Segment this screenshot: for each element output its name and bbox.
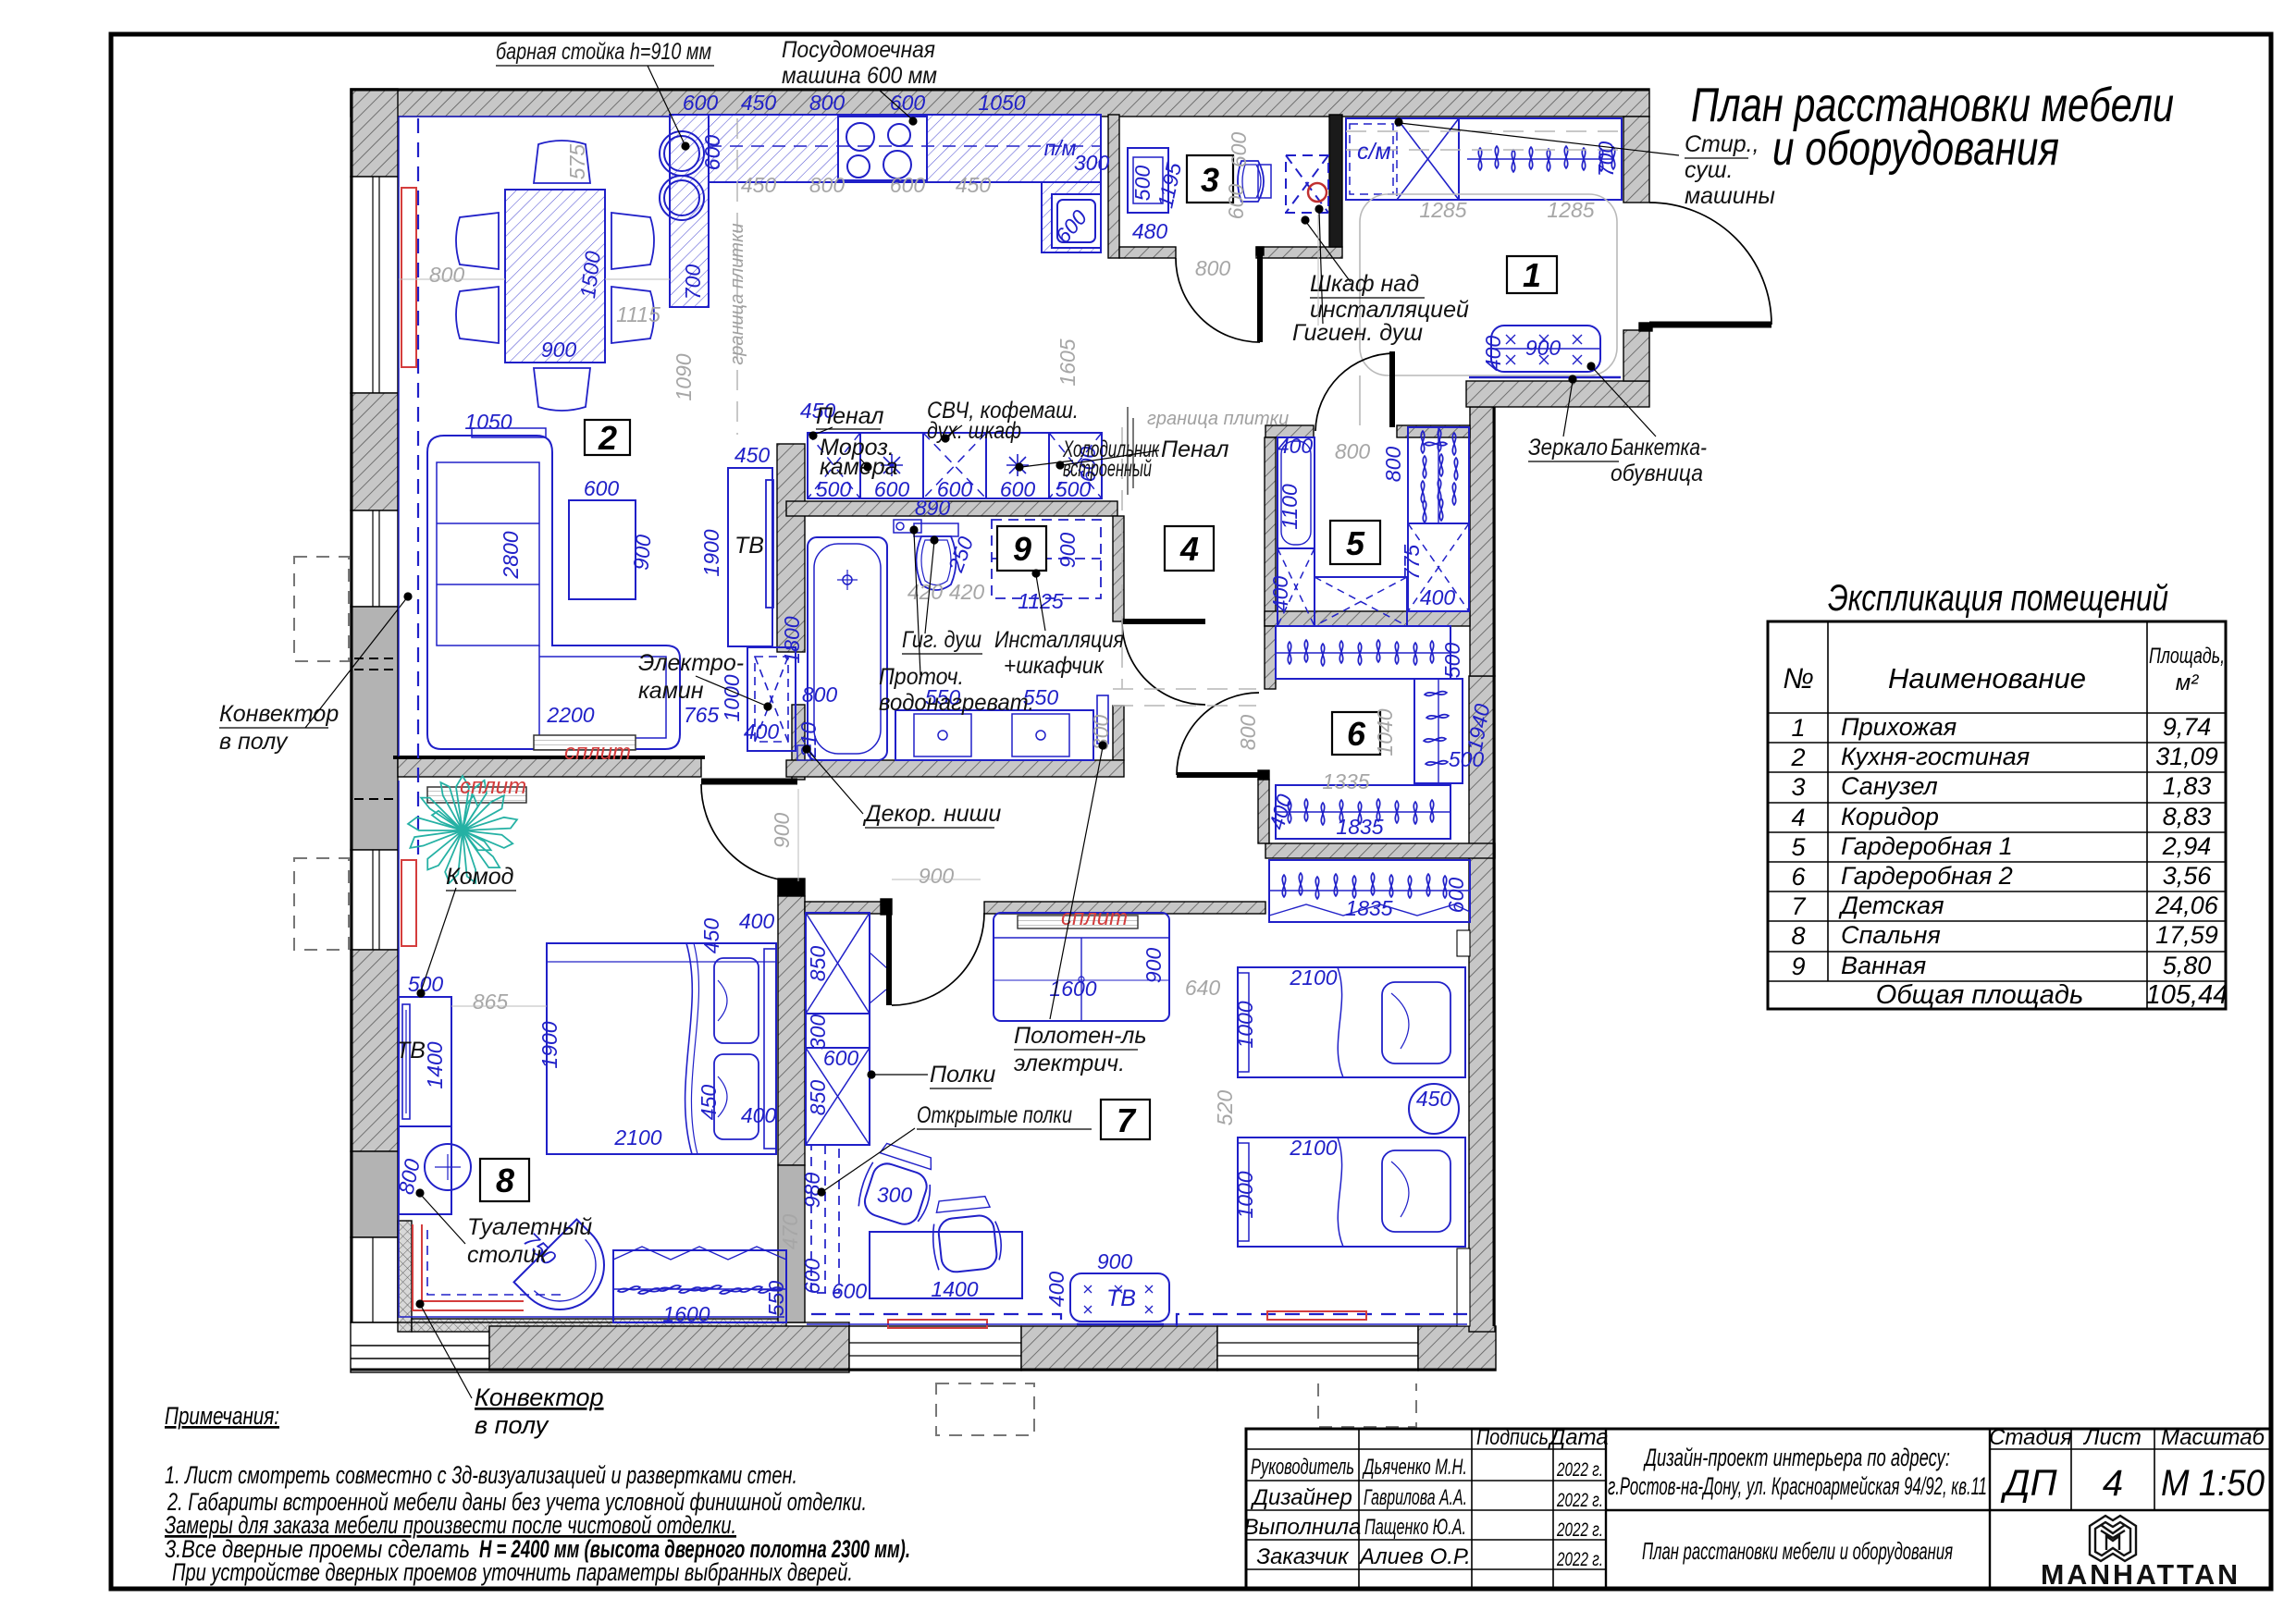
svg-text:3: 3 xyxy=(1791,773,1805,801)
svg-text:700: 700 xyxy=(681,264,705,301)
svg-text:600: 600 xyxy=(890,173,926,197)
svg-text:камин: камин xyxy=(638,678,704,704)
svg-text:600: 600 xyxy=(1444,878,1468,914)
svg-text:5: 5 xyxy=(1791,833,1806,861)
svg-text:2200: 2200 xyxy=(546,703,594,727)
svg-text:800: 800 xyxy=(809,91,846,115)
svg-text:1285: 1285 xyxy=(1547,198,1594,222)
svg-text:2022 г.: 2022 г. xyxy=(1556,1459,1603,1481)
svg-text:Ванная: Ванная xyxy=(1841,952,1926,979)
svg-text:600: 600 xyxy=(683,91,719,115)
svg-text:камера: камера xyxy=(820,454,898,480)
svg-text:5,80: 5,80 xyxy=(2163,952,2212,979)
svg-text:Пенал: Пенал xyxy=(816,403,884,429)
svg-text:г.Ростов-на-Дону, ул. Красноар: г.Ростов-на-Дону, ул. Красноармейская 94… xyxy=(1608,1472,1987,1500)
svg-text:2022 г.: 2022 г. xyxy=(1556,1519,1603,1541)
svg-text:и оборудования: и оборудования xyxy=(1772,122,2059,176)
svg-text:Санузел: Санузел xyxy=(1841,772,1938,800)
svg-text:900: 900 xyxy=(770,813,794,849)
svg-text:1. Лист смотреть совместно с 3: 1. Лист смотреть совместно с 3д-визуализ… xyxy=(165,1461,797,1489)
svg-text:Дизайнер: Дизайнер xyxy=(1250,1485,1352,1510)
svg-text:Коридор: Коридор xyxy=(1841,803,1939,830)
svg-text:765: 765 xyxy=(684,703,720,727)
svg-text:6: 6 xyxy=(1347,715,1366,753)
svg-text:300: 300 xyxy=(877,1183,913,1207)
svg-text:800: 800 xyxy=(1335,439,1371,463)
svg-text:Наименование: Наименование xyxy=(1888,662,2086,695)
svg-text:400: 400 xyxy=(744,719,780,744)
svg-text:1100: 1100 xyxy=(1278,484,1302,530)
svg-text:9,74: 9,74 xyxy=(2163,713,2212,741)
svg-text:400: 400 xyxy=(1278,434,1314,458)
svg-text:5: 5 xyxy=(1346,524,1365,562)
svg-text:Гардеробная 1: Гардеробная 1 xyxy=(1841,832,2013,860)
svg-text:водонагреват.: водонагреват. xyxy=(879,690,1034,716)
svg-text:Пенал: Пенал xyxy=(1161,436,1229,462)
svg-text:Дьяченко М.Н.: Дьяченко М.Н. xyxy=(1362,1455,1467,1480)
svg-text:1400: 1400 xyxy=(931,1277,978,1301)
svg-text:3: 3 xyxy=(1201,161,1219,199)
svg-text:600: 600 xyxy=(1224,184,1248,220)
svg-text:2100: 2100 xyxy=(1289,1136,1337,1160)
svg-text:с/м: с/м xyxy=(1357,139,1391,165)
svg-text:2100: 2100 xyxy=(1289,965,1337,990)
svg-text:встроенный: встроенный xyxy=(1063,456,1152,482)
svg-text:300: 300 xyxy=(806,1014,830,1051)
svg-text:450: 450 xyxy=(1416,1087,1452,1111)
svg-text:Шкаф над: Шкаф над xyxy=(1310,271,1419,297)
svg-text:500: 500 xyxy=(1440,643,1464,679)
svg-text:Заказчик: Заказчик xyxy=(1256,1544,1350,1569)
svg-text:ТВ: ТВ xyxy=(1106,1285,1136,1311)
svg-text:400: 400 xyxy=(1481,336,1505,372)
svg-text:500: 500 xyxy=(1449,747,1485,771)
svg-text:450: 450 xyxy=(699,918,723,954)
svg-text:2100: 2100 xyxy=(613,1125,661,1150)
svg-text:900: 900 xyxy=(1097,1249,1133,1273)
svg-text:2: 2 xyxy=(598,419,617,457)
svg-text:Конвектор: Конвектор xyxy=(219,701,339,727)
svg-text:500: 500 xyxy=(1130,166,1154,202)
svg-text:Спальня: Спальня xyxy=(1841,921,1941,949)
svg-text:400: 400 xyxy=(1420,585,1456,609)
svg-text:Полотен-ль: Полотен-ль xyxy=(1014,1023,1147,1049)
svg-text:8: 8 xyxy=(496,1162,514,1199)
svg-text:Подпись: Подпись xyxy=(1476,1425,1549,1450)
svg-text:Стадия: Стадия xyxy=(1989,1425,2072,1450)
svg-text:инсталляцией: инсталляцией xyxy=(1310,297,1469,323)
svg-text:1: 1 xyxy=(1791,714,1805,742)
svg-text:800: 800 xyxy=(429,263,465,287)
svg-text:Гиг. душ: Гиг. душ xyxy=(902,627,981,653)
svg-text:800: 800 xyxy=(809,173,846,197)
svg-text:обувница: обувница xyxy=(1611,461,1703,486)
svg-text:суш.: суш. xyxy=(1685,157,1733,183)
svg-text:8,83: 8,83 xyxy=(2163,803,2212,830)
svg-text:1040: 1040 xyxy=(1373,708,1397,756)
svg-text:Выполнила: Выполнила xyxy=(1244,1515,1362,1540)
svg-text:1400: 1400 xyxy=(423,1041,447,1088)
svg-text:1000: 1000 xyxy=(720,674,744,721)
svg-text:Полки: Полки xyxy=(930,1062,995,1088)
svg-text:31,09: 31,09 xyxy=(2155,743,2218,770)
svg-text:1000: 1000 xyxy=(1233,1171,1257,1218)
svg-text:Гаврилова А.А.: Гаврилова А.А. xyxy=(1364,1485,1467,1510)
svg-text:барная стойка h=910 мм: барная стойка h=910 мм xyxy=(496,39,711,65)
svg-text:900: 900 xyxy=(1055,533,1080,569)
svg-text:Масштаб: Масштаб xyxy=(2161,1425,2266,1450)
svg-text:1600: 1600 xyxy=(1049,977,1096,1001)
svg-text:550: 550 xyxy=(764,1281,788,1317)
svg-text:450: 450 xyxy=(734,443,771,467)
svg-text:Дизайн-проект интерьера по адр: Дизайн-проект интерьера по адресу: xyxy=(1643,1444,1950,1471)
svg-text:520: 520 xyxy=(1213,1090,1237,1126)
svg-text:Электро-: Электро- xyxy=(638,650,744,676)
svg-text:900: 900 xyxy=(628,534,655,572)
svg-text:4: 4 xyxy=(1791,804,1805,831)
svg-text:450: 450 xyxy=(741,173,777,197)
svg-text:3,56: 3,56 xyxy=(2163,862,2213,890)
svg-text:2: 2 xyxy=(1790,744,1805,771)
svg-text:Гардеробная 2: Гардеробная 2 xyxy=(1841,862,2013,890)
svg-text:1115: 1115 xyxy=(616,302,660,326)
svg-text:Пащенко Ю.А.: Пащенко Ю.А. xyxy=(1364,1515,1466,1540)
svg-text:850: 850 xyxy=(806,946,830,982)
svg-text:граница плитки: граница плитки xyxy=(727,223,747,364)
svg-text:М 1:50: М 1:50 xyxy=(2161,1463,2265,1504)
svg-text:4: 4 xyxy=(1179,530,1199,568)
svg-text:в полу: в полу xyxy=(219,729,289,755)
svg-text:600: 600 xyxy=(1000,477,1036,501)
svg-text:600: 600 xyxy=(700,135,724,171)
svg-text:600: 600 xyxy=(874,477,910,501)
svg-text:При устройстве дверных проемов: При устройстве дверных проемов уточнить … xyxy=(172,1558,853,1586)
svg-text:Площадь,: Площадь, xyxy=(2149,644,2225,669)
svg-text:7: 7 xyxy=(1791,892,1806,920)
svg-text:800: 800 xyxy=(802,682,838,707)
svg-text:9: 9 xyxy=(1013,530,1031,568)
svg-text:1,83: 1,83 xyxy=(2163,772,2212,800)
svg-text:машина 600 мм: машина 600 мм xyxy=(782,63,937,89)
svg-text:7: 7 xyxy=(1117,1101,1137,1139)
svg-text:Открытые полки: Открытые полки xyxy=(917,1102,1072,1128)
svg-text:850: 850 xyxy=(806,1080,830,1116)
svg-text:105,44: 105,44 xyxy=(2146,980,2228,1010)
svg-text:Общая площадь: Общая площадь xyxy=(1876,980,2083,1010)
svg-text:2,94: 2,94 xyxy=(2162,832,2212,860)
svg-text:400: 400 xyxy=(739,909,775,933)
svg-text:640: 640 xyxy=(1185,976,1221,1000)
svg-text:600: 600 xyxy=(584,476,620,500)
svg-text:столик: столик xyxy=(467,1242,548,1268)
svg-text:1835: 1835 xyxy=(1345,896,1392,920)
svg-text:План расстановки мебели и обор: План расстановки мебели и оборудования xyxy=(1642,1537,1953,1565)
svg-text:№: № xyxy=(1783,662,1814,695)
svg-text:17,59: 17,59 xyxy=(2155,921,2218,949)
svg-text:4: 4 xyxy=(2103,1463,2123,1504)
svg-text:Зеркало: Зеркало xyxy=(1528,435,1608,461)
svg-text:450: 450 xyxy=(741,91,777,115)
svg-text:900: 900 xyxy=(1142,948,1166,984)
svg-text:210: 210 xyxy=(796,722,821,759)
svg-text:Проточ.: Проточ. xyxy=(879,664,964,690)
svg-text:1835: 1835 xyxy=(1336,815,1383,839)
svg-text:ТВ: ТВ xyxy=(396,1038,426,1064)
svg-text:865: 865 xyxy=(473,990,509,1014)
svg-text:Инсталляция: Инсталляция xyxy=(994,627,1124,653)
svg-text:400: 400 xyxy=(741,1103,777,1127)
svg-text:Детская: Детская xyxy=(1838,891,1944,919)
svg-text:1090: 1090 xyxy=(672,353,696,400)
svg-text:дух. шкаф: дух. шкаф xyxy=(927,418,1021,444)
svg-text:Комод: Комод xyxy=(446,864,514,890)
svg-text:800: 800 xyxy=(1195,256,1231,280)
svg-text:1900: 1900 xyxy=(537,1021,562,1068)
svg-text:1285: 1285 xyxy=(1419,198,1466,222)
svg-text:400: 400 xyxy=(1044,1272,1068,1308)
svg-text:1800: 1800 xyxy=(780,616,804,663)
svg-text:сплит: сплит xyxy=(564,740,631,765)
svg-text:1605: 1605 xyxy=(1055,338,1080,386)
svg-text:1335: 1335 xyxy=(1322,769,1369,793)
svg-text:900: 900 xyxy=(919,864,955,888)
svg-text:Посудомоечная: Посудомоечная xyxy=(782,37,935,63)
svg-text:450: 450 xyxy=(697,1085,721,1121)
svg-text:в полу: в полу xyxy=(475,1411,549,1439)
svg-text:420: 420 xyxy=(949,580,985,604)
svg-text:480: 480 xyxy=(1132,219,1168,243)
svg-text:420: 420 xyxy=(907,580,944,604)
svg-text:500: 500 xyxy=(816,477,852,501)
svg-text:MANHATTAN: MANHATTAN xyxy=(2041,1558,2240,1591)
svg-text:600: 600 xyxy=(823,1046,859,1070)
svg-text:8: 8 xyxy=(1791,922,1805,950)
svg-text:+шкафчик: +шкафчик xyxy=(1004,653,1105,679)
svg-text:890: 890 xyxy=(915,496,951,520)
svg-text:400: 400 xyxy=(1268,576,1292,612)
svg-text:500: 500 xyxy=(408,972,444,996)
svg-text:Дата: Дата xyxy=(1547,1425,1608,1450)
svg-text:2022 г.: 2022 г. xyxy=(1556,1490,1603,1511)
svg-text:6: 6 xyxy=(1791,863,1806,891)
svg-text:600: 600 xyxy=(890,91,926,115)
svg-text:600: 600 xyxy=(1227,132,1251,168)
svg-text:Лист: Лист xyxy=(2082,1425,2142,1450)
svg-text:1900: 1900 xyxy=(699,529,723,576)
svg-text:Туалетный: Туалетный xyxy=(467,1214,592,1240)
svg-text:900: 900 xyxy=(1525,336,1562,360)
svg-text:600: 600 xyxy=(800,1259,824,1295)
svg-text:800: 800 xyxy=(1236,715,1260,751)
svg-text:сплит: сплит xyxy=(460,774,526,799)
svg-text:Алиев О.Р.: Алиев О.Р. xyxy=(1358,1544,1471,1569)
svg-text:Кухня-гостиная: Кухня-гостиная xyxy=(1841,743,2030,770)
svg-text:450: 450 xyxy=(956,173,992,197)
svg-text:1: 1 xyxy=(1523,256,1541,294)
svg-text:775: 775 xyxy=(1400,545,1424,581)
svg-text:Руководитель: Руководитель xyxy=(1251,1455,1354,1480)
svg-text:2022 г.: 2022 г. xyxy=(1556,1549,1603,1570)
svg-text:Декор. ниши: Декор. ниши xyxy=(862,801,1001,827)
svg-text:машины: машины xyxy=(1685,183,1775,209)
svg-text:1050: 1050 xyxy=(978,91,1025,115)
svg-text:м²: м² xyxy=(2176,670,2199,695)
svg-text:Экспликация помещений: Экспликация помещений xyxy=(1828,578,2168,619)
svg-text:граница плитки: граница плитки xyxy=(1147,409,1289,429)
svg-text:ДП: ДП xyxy=(2000,1463,2057,1504)
svg-text:Стир.,: Стир., xyxy=(1685,131,1759,157)
svg-text:1050: 1050 xyxy=(464,410,512,434)
svg-text:575: 575 xyxy=(565,144,589,180)
svg-text:п/м: п/м xyxy=(1044,136,1077,160)
svg-text:2800: 2800 xyxy=(499,531,523,579)
svg-text:9: 9 xyxy=(1791,953,1805,980)
svg-text:800: 800 xyxy=(1381,447,1405,483)
svg-text:1600: 1600 xyxy=(662,1302,710,1326)
svg-text:Конвектор: Конвектор xyxy=(475,1383,604,1411)
svg-text:Гигиен. душ: Гигиен. душ xyxy=(1292,320,1423,346)
svg-text:ТВ: ТВ xyxy=(734,533,764,559)
svg-text:600: 600 xyxy=(832,1279,868,1303)
svg-text:24,06: 24,06 xyxy=(2154,891,2219,919)
svg-text:Банкетка-: Банкетка- xyxy=(1611,435,1707,461)
svg-text:Прихожая: Прихожая xyxy=(1841,713,1957,741)
svg-text:300: 300 xyxy=(1074,151,1110,175)
svg-text:Примечания:: Примечания: xyxy=(165,1402,279,1430)
svg-text:470: 470 xyxy=(778,1214,802,1250)
svg-text:900: 900 xyxy=(541,338,577,362)
svg-text:электрич.: электрич. xyxy=(1014,1051,1125,1076)
svg-text:1000: 1000 xyxy=(1233,1001,1257,1048)
